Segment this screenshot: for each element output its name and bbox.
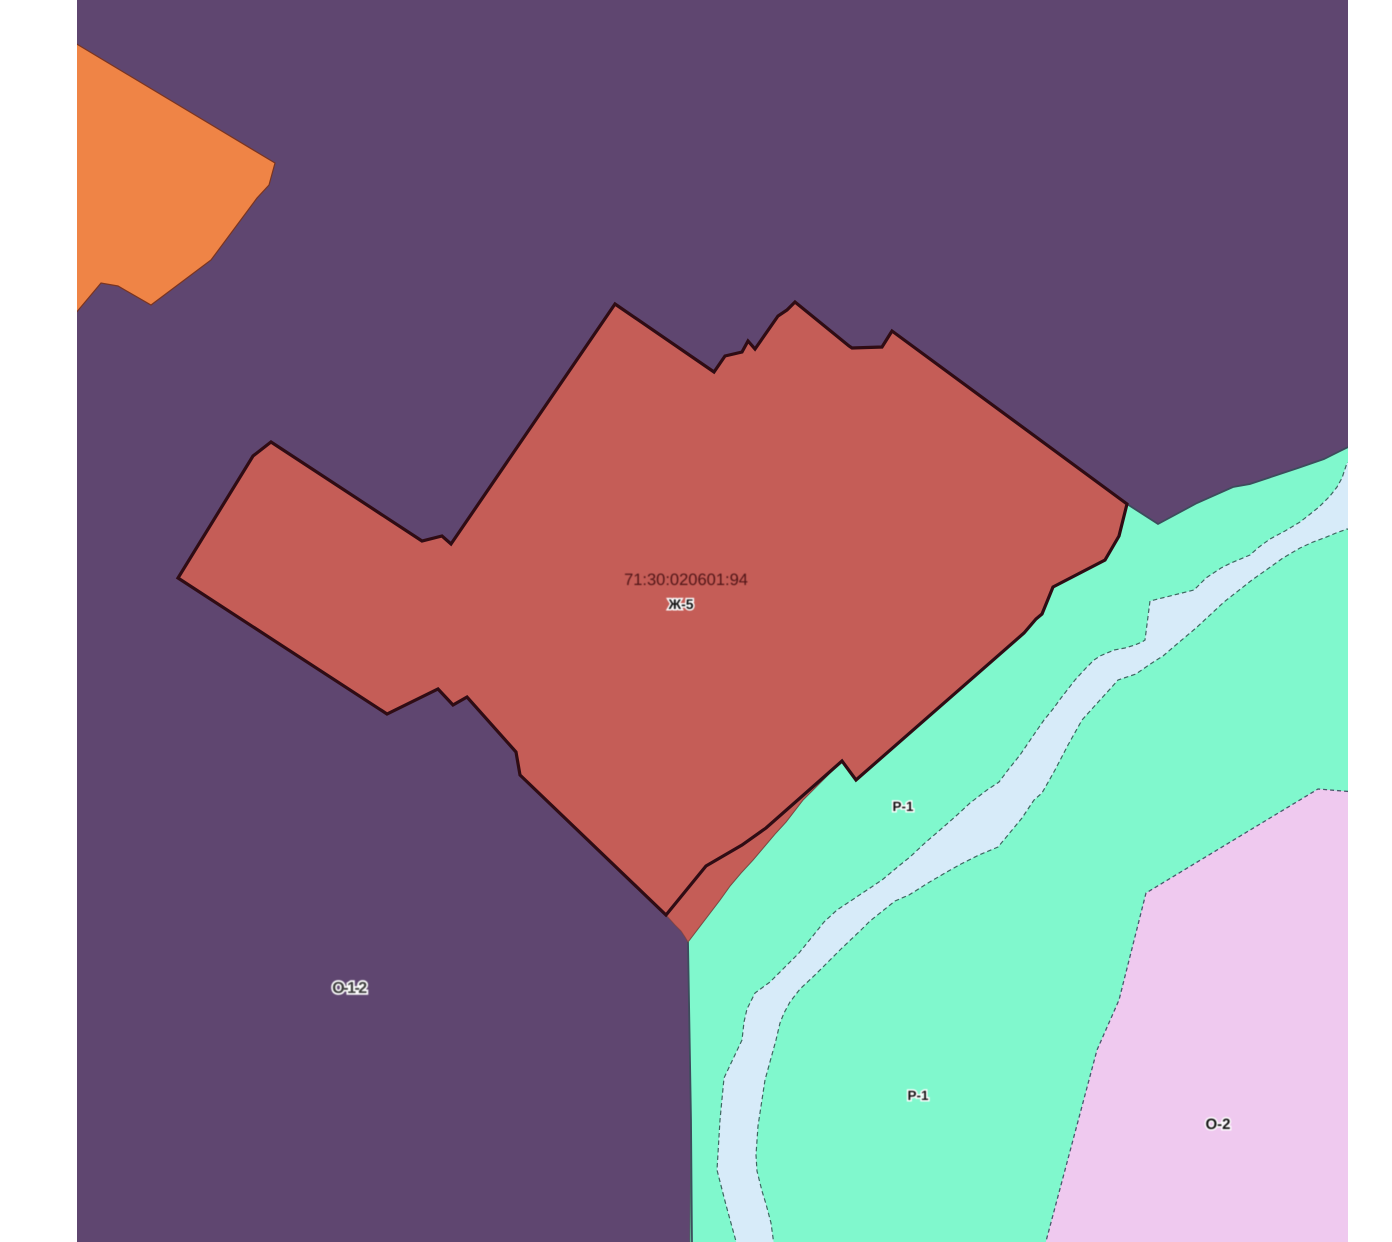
svg-text:Р-1: Р-1 xyxy=(907,1088,929,1103)
svg-text:71:30:020601:94: 71:30:020601:94 xyxy=(624,571,748,589)
svg-text:О-2: О-2 xyxy=(1205,1116,1230,1133)
svg-text:О-1-2: О-1-2 xyxy=(332,980,367,997)
svg-text:Ж-5: Ж-5 xyxy=(667,596,693,612)
svg-text:Р-1: Р-1 xyxy=(892,799,914,814)
